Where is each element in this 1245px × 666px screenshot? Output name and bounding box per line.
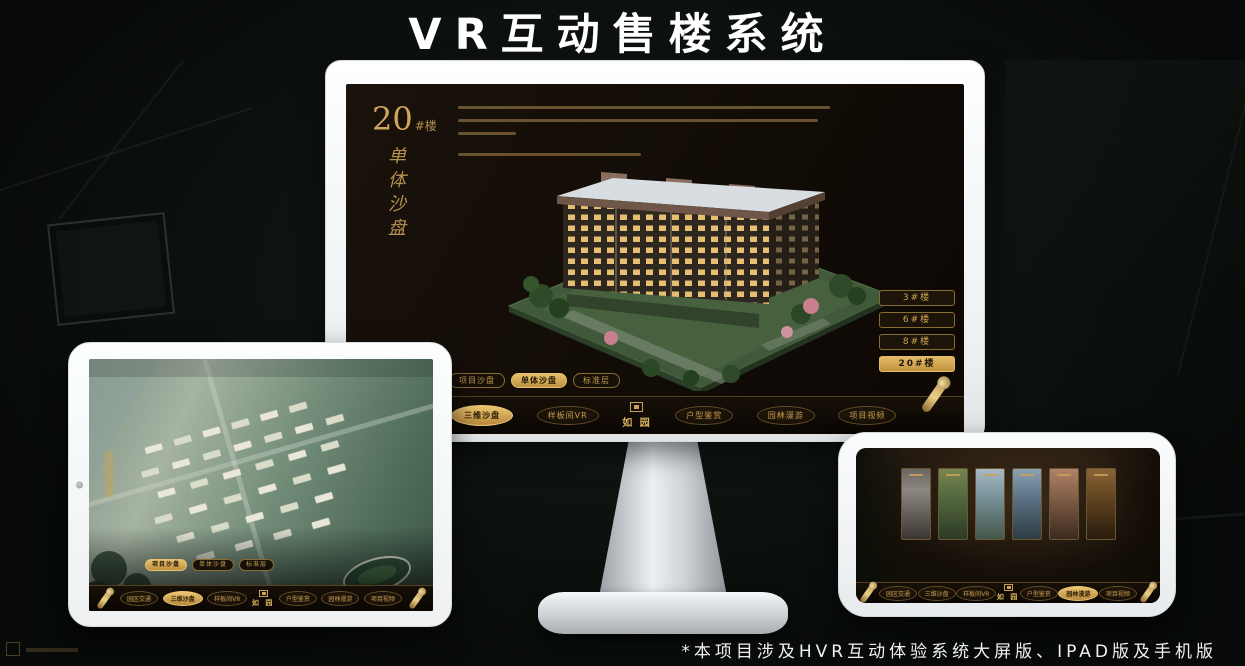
background-map-line	[59, 61, 184, 220]
background-logo-mark	[6, 642, 20, 656]
phone-bottom-nav: 园区交通 三维沙盘 样板间VR 如 园 户型鉴赏 园林漫游 项目视频	[856, 582, 1160, 603]
card-label	[946, 474, 960, 476]
view-tab-group: 项目沙盘 单体沙盘 标准层	[449, 373, 620, 388]
tablet-nav-3d-sandbox[interactable]: 三维沙盘	[163, 591, 203, 606]
background-map-line	[0, 107, 253, 195]
floor-button-group: 3#楼 6#楼 8#楼 20#楼	[879, 290, 955, 378]
tablet-tab-standard-floor[interactable]: 标准层	[239, 559, 274, 571]
panorama-card[interactable]	[1012, 468, 1042, 540]
building-heading: 20#楼 单体沙盘	[372, 100, 437, 242]
tab-standard-floor[interactable]: 标准层	[573, 373, 620, 388]
nav-item-showroom-vr[interactable]: 样板间VR	[537, 406, 599, 425]
tablet-nav-project-video[interactable]: 项目视频	[364, 591, 402, 606]
building-render	[501, 146, 901, 391]
tablet-bottom-nav: 园区交通 三维沙盘 样板间VR 如 园 户型鉴赏 园林漫游 项目视频	[89, 585, 433, 611]
card-label	[1094, 474, 1108, 476]
background-buildings	[1005, 60, 1245, 440]
phone-nav-project-video[interactable]: 项目视频	[1099, 586, 1137, 601]
phone-nav-traffic[interactable]: 园区交通	[879, 586, 917, 601]
logo-text: 如 园	[252, 598, 274, 608]
floor-button-8[interactable]: 8#楼	[879, 334, 955, 350]
tab-single-sandbox[interactable]: 单体沙盘	[511, 373, 567, 388]
monitor-stand-base	[538, 592, 788, 634]
card-label	[1020, 474, 1034, 476]
monitor-stand-neck	[598, 438, 728, 602]
phone-nav-3d-sandbox[interactable]: 三维沙盘	[918, 586, 956, 601]
tablet-nav-showroom-vr[interactable]: 样板间VR	[207, 591, 247, 606]
phone-device: 园区交通 三维沙盘 样板间VR 如 园 户型鉴赏 园林漫游 项目视频	[838, 432, 1176, 617]
tablet-tab-project-sandbox[interactable]: 项目沙盘	[145, 559, 187, 571]
panorama-card[interactable]	[1086, 468, 1116, 540]
scroll-icon[interactable]	[96, 588, 114, 609]
floor-button-20[interactable]: 20#楼	[879, 356, 955, 372]
nav-item-floorplans[interactable]: 户型鉴赏	[675, 406, 733, 425]
tablet-nav-traffic[interactable]: 园区交通	[120, 591, 158, 606]
ruyuan-logo: 如 园	[252, 590, 274, 608]
phone-nav-floorplans[interactable]: 户型鉴赏	[1020, 586, 1058, 601]
phone-screen: 园区交通 三维沙盘 样板间VR 如 园 户型鉴赏 园林漫游 项目视频	[856, 448, 1160, 603]
floor-button-6[interactable]: 6#楼	[879, 312, 955, 328]
phone-nav-garden-tour[interactable]: 园林漫游	[1058, 586, 1098, 601]
floor-button-3[interactable]: 3#楼	[879, 290, 955, 306]
building-subtitle-vertical: 单体沙盘	[382, 146, 408, 242]
tablet-device: 项目沙盘 单体沙盘 标准层 园区交通 三维沙盘 样板间VR 如 园 户型鉴赏 园…	[68, 342, 452, 627]
logo-emblem-icon	[1004, 584, 1013, 591]
aerial-masterplan	[89, 359, 433, 611]
logo-text: 如 园	[997, 592, 1019, 602]
card-label	[909, 474, 923, 476]
poster: VR互动售楼系统 20#楼 单体沙盘	[0, 0, 1245, 666]
panorama-card[interactable]	[975, 468, 1005, 540]
footnote: *本项目涉及HVR互动体验系统大屏版、IPAD版及手机版	[681, 637, 1217, 662]
ruyuan-logo: 如 园	[622, 402, 651, 429]
tablet-screen: 项目沙盘 单体沙盘 标准层 园区交通 三维沙盘 样板间VR 如 园 户型鉴赏 园…	[89, 359, 433, 611]
background-logo-text	[26, 648, 78, 652]
page-title: VR互动售楼系统	[0, 0, 1245, 62]
background-plaque	[47, 212, 175, 326]
panorama-card[interactable]	[901, 468, 931, 540]
tablet-nav-garden-tour[interactable]: 园林漫游	[321, 591, 359, 606]
logo-text: 如 园	[622, 414, 651, 429]
building-number: 20#楼	[372, 100, 437, 138]
tablet-view-tab-group: 项目沙盘 单体沙盘 标准层	[145, 559, 274, 571]
card-label	[1057, 474, 1071, 476]
panorama-card[interactable]	[1049, 468, 1079, 540]
phone-nav-showroom-vr[interactable]: 样板间VR	[956, 586, 996, 601]
nav-item-project-video[interactable]: 项目视频	[838, 406, 896, 425]
logo-emblem-icon	[259, 590, 268, 597]
scroll-icon[interactable]	[920, 377, 949, 413]
tablet-tab-single-sandbox[interactable]: 单体沙盘	[192, 559, 234, 571]
logo-emblem-icon	[630, 402, 643, 412]
card-label	[983, 474, 997, 476]
panorama-card[interactable]	[938, 468, 968, 540]
ruyuan-logo: 如 园	[997, 584, 1019, 602]
panorama-card-list	[856, 468, 1160, 540]
tab-project-sandbox[interactable]: 项目沙盘	[449, 373, 505, 388]
scroll-icon[interactable]	[409, 588, 427, 609]
nav-item-3d-sandbox[interactable]: 三维沙盘	[451, 405, 513, 426]
scroll-icon[interactable]	[1140, 582, 1158, 603]
tablet-camera-icon	[76, 481, 83, 488]
scroll-icon[interactable]	[859, 582, 877, 603]
tablet-nav-floorplans[interactable]: 户型鉴赏	[279, 591, 317, 606]
nav-item-garden-tour[interactable]: 园林漫游	[757, 406, 815, 425]
